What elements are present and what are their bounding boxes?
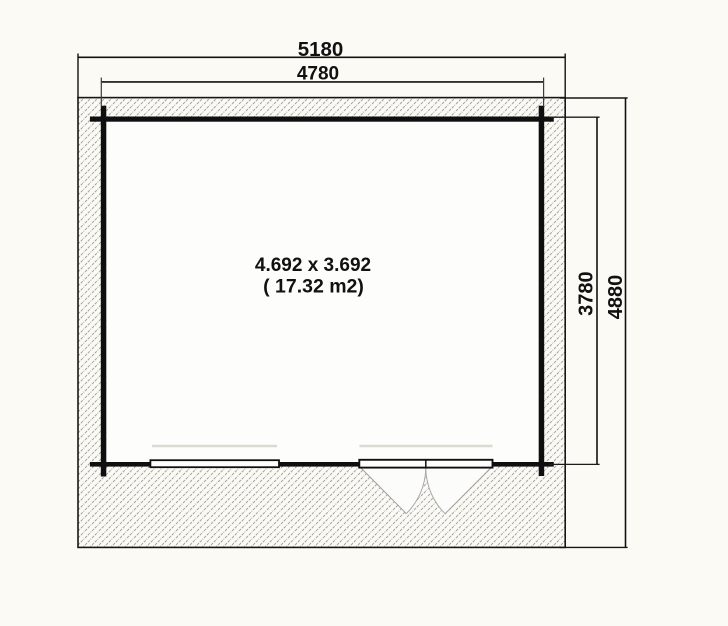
svg-text:4880: 4880 [605, 275, 627, 320]
svg-text:3780: 3780 [575, 271, 597, 316]
svg-text:( 17.32 m2): ( 17.32 m2) [263, 276, 364, 298]
svg-text:4.692 x 3.692: 4.692 x 3.692 [255, 255, 371, 276]
